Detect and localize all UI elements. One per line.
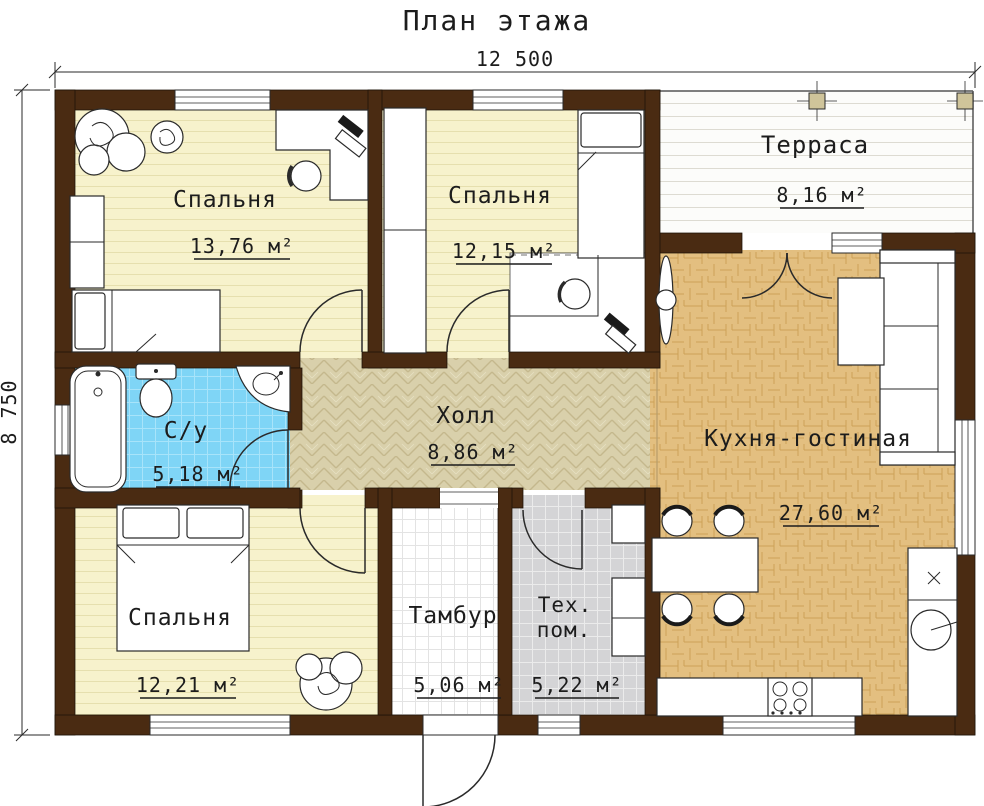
opening-hall-vestibule [440, 488, 498, 508]
room-label: Спальня [173, 187, 277, 213]
window-bedroom1 [175, 90, 270, 110]
room-area: 8,16 м² [776, 183, 867, 207]
wardrobe-icon [70, 196, 104, 288]
window-kitchen-right [955, 420, 975, 555]
dimension-top: 12 500 [49, 47, 981, 88]
floor-plan-page: План этажа 12 500 8 750 [0, 0, 984, 806]
bed-icon [72, 290, 220, 352]
room-label: Холл [436, 403, 495, 429]
terrace-floor [660, 91, 973, 233]
room-label: Кухня-гостиная [704, 426, 912, 452]
window-kitchen-bottom [723, 715, 855, 735]
kitchen-counter [657, 678, 862, 716]
stove-icon [768, 678, 812, 716]
window-bedroom2 [473, 90, 563, 110]
dimension-left: 8 750 [0, 84, 50, 741]
room-label: Тамбур [408, 603, 497, 629]
window-bedroom3 [150, 715, 290, 735]
room-label: Терраса [761, 131, 869, 159]
room-area: 12,21 м² [136, 673, 240, 697]
room-label-line2: пом. [537, 618, 592, 642]
window-tech-room [538, 715, 580, 735]
room-area: 12,15 м² [452, 239, 556, 263]
chair-icon [662, 506, 692, 536]
height-dimension-label: 8 750 [0, 379, 21, 444]
room-label: Спальня [128, 605, 232, 631]
width-dimension-label: 12 500 [476, 47, 554, 71]
room-area: 5,06 м² [413, 673, 504, 697]
room-label: С/у [164, 418, 209, 444]
room-label-line1: Тех. [538, 593, 593, 617]
room-area: 27,60 м² [779, 501, 883, 525]
floor-plan-drawing: План этажа 12 500 8 750 [0, 0, 984, 806]
page-title: План этажа [403, 4, 592, 37]
shelf-icon [612, 505, 645, 543]
chair-icon [714, 506, 744, 536]
chair-icon [662, 594, 692, 624]
bathtub-icon [70, 366, 126, 492]
door-entrance [423, 715, 498, 806]
wardrobe-icon [384, 108, 426, 353]
kitchen-counter-right [908, 548, 957, 716]
room-label: Спальня [448, 183, 552, 209]
room-area: 13,76 м² [190, 234, 294, 258]
window-terrace-kitchen [832, 233, 882, 253]
shelf-icon [612, 578, 645, 656]
room-area: 5,22 м² [531, 673, 622, 697]
coffee-table-icon [838, 278, 884, 365]
room-area: 5,18 м² [152, 462, 243, 486]
room-area: 8,86 м² [427, 440, 518, 464]
chair-icon [714, 594, 744, 624]
bed-icon [578, 110, 644, 258]
desk-chair-icon [559, 279, 590, 309]
plant-icon [151, 121, 183, 153]
tech-room-fixtures [612, 505, 645, 656]
